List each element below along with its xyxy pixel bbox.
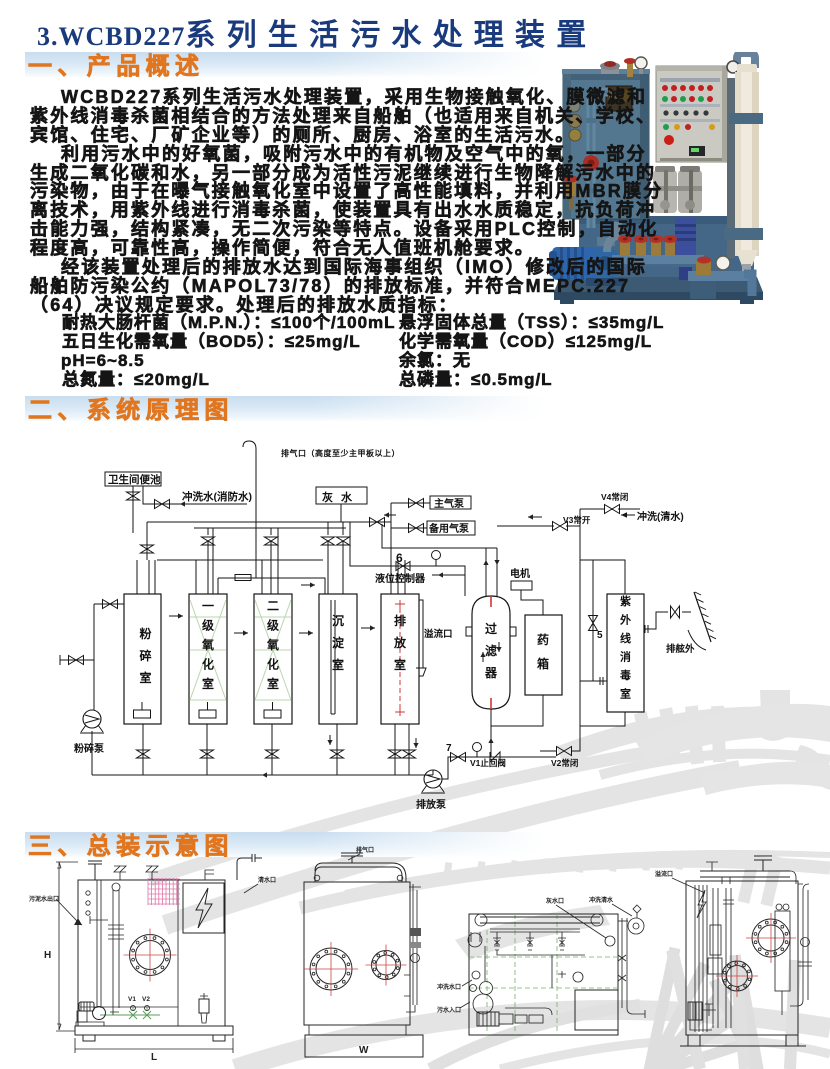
svg-text:放: 放 xyxy=(393,635,407,650)
svg-text:污泥水出口: 污泥水出口 xyxy=(29,895,59,903)
svg-text:冲洗水(消防水): 冲洗水(消防水) xyxy=(182,490,252,503)
svg-text:冲洗水口: 冲洗水口 xyxy=(437,983,461,991)
svg-text:过: 过 xyxy=(485,621,497,636)
svg-text:沉: 沉 xyxy=(332,613,344,628)
svg-text:液位控制器: 液位控制器 xyxy=(375,572,426,585)
svg-text:碎: 碎 xyxy=(139,648,151,663)
svg-text:清水口: 清水口 xyxy=(258,876,276,884)
svg-text:V4常闭: V4常闭 xyxy=(601,492,628,502)
svg-text:灰水: 灰水 xyxy=(322,490,360,504)
svg-text:排气口: 排气口 xyxy=(356,846,374,854)
svg-text:滤: 滤 xyxy=(485,643,497,658)
svg-text:线: 线 xyxy=(620,631,631,645)
svg-text:消: 消 xyxy=(620,650,631,664)
svg-text:6: 6 xyxy=(396,551,403,565)
svg-text:冲洗(清水): 冲洗(清水) xyxy=(637,510,684,523)
svg-text:淀: 淀 xyxy=(332,635,345,650)
svg-text:主气泵: 主气泵 xyxy=(434,497,465,510)
svg-text:冲洗清水: 冲洗清水 xyxy=(589,896,614,904)
svg-text:化: 化 xyxy=(267,657,279,672)
svg-text:紫: 紫 xyxy=(620,594,631,608)
svg-text:排: 排 xyxy=(394,613,406,628)
svg-text:污水入口: 污水入口 xyxy=(437,1006,461,1014)
svg-text:室: 室 xyxy=(620,687,631,701)
svg-text:H: H xyxy=(44,950,51,961)
svg-text:排放泵: 排放泵 xyxy=(416,798,447,811)
svg-text:溢流口: 溢流口 xyxy=(424,628,453,640)
svg-text:灰水口: 灰水口 xyxy=(546,897,564,905)
svg-text:W: W xyxy=(359,1045,369,1056)
svg-text:毒: 毒 xyxy=(620,668,631,682)
svg-text:5: 5 xyxy=(597,630,603,641)
svg-text:排舷外: 排舷外 xyxy=(666,643,695,655)
svg-text:V2常闭: V2常闭 xyxy=(551,758,578,768)
svg-text:药: 药 xyxy=(537,632,549,647)
svg-text:氧: 氧 xyxy=(266,637,279,652)
svg-text:二: 二 xyxy=(267,599,279,613)
svg-text:备用气泵: 备用气泵 xyxy=(428,522,470,535)
svg-text:室: 室 xyxy=(332,657,344,672)
svg-text:V1: V1 xyxy=(128,996,136,1003)
svg-text:电机: 电机 xyxy=(510,567,530,580)
svg-text:排气口（高度至少主甲板以上）: 排气口（高度至少主甲板以上） xyxy=(281,448,400,458)
svg-text:V3常开: V3常开 xyxy=(563,515,591,525)
svg-text:氧: 氧 xyxy=(201,637,214,652)
svg-text:室: 室 xyxy=(267,676,279,691)
svg-text:化: 化 xyxy=(202,657,214,672)
svg-text:室: 室 xyxy=(394,657,406,672)
svg-text:室: 室 xyxy=(202,676,214,691)
svg-text:V1止回阀: V1止回阀 xyxy=(470,758,506,768)
svg-text:箱: 箱 xyxy=(537,656,549,671)
svg-text:室: 室 xyxy=(139,670,151,685)
svg-text:级: 级 xyxy=(267,618,279,633)
svg-text:一: 一 xyxy=(202,599,214,613)
svg-text:V2: V2 xyxy=(142,996,150,1003)
svg-text:溢流口: 溢流口 xyxy=(655,870,673,878)
svg-text:器: 器 xyxy=(484,666,498,680)
svg-text:级: 级 xyxy=(202,618,214,633)
svg-text:粉: 粉 xyxy=(139,626,151,641)
svg-text:L: L xyxy=(151,1052,157,1063)
svg-text:粉碎泵: 粉碎泵 xyxy=(74,742,105,755)
svg-text:外: 外 xyxy=(619,613,631,627)
svg-text:卫生间便池: 卫生间便池 xyxy=(108,473,161,486)
